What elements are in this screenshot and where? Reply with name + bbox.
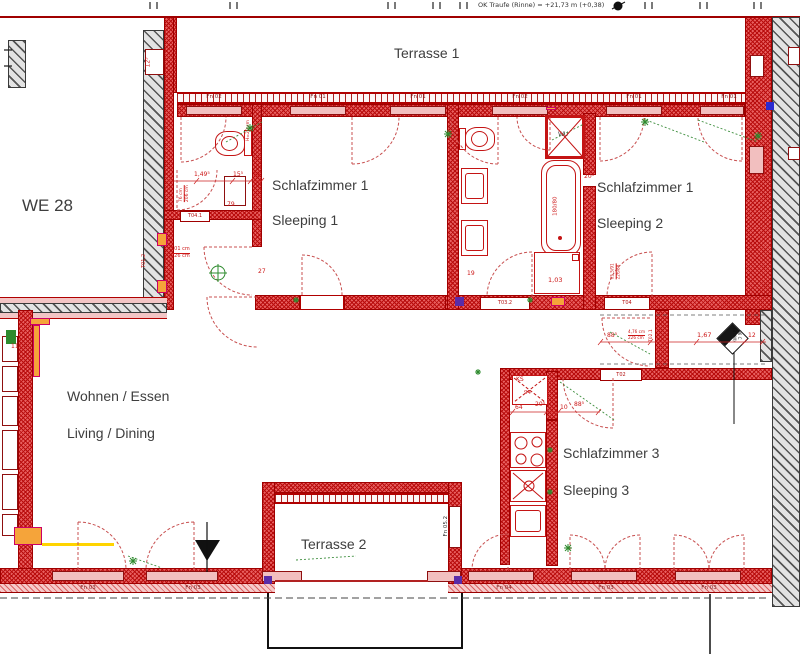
room-label-sleeping3-de: Schlafzimmer 3: [563, 445, 659, 461]
facade-box: [2, 430, 18, 470]
entry-badge-text: 06 C (BT/W): [731, 322, 741, 348]
window-label-side: Fn 05.2: [443, 516, 449, 537]
window-label: Fn 04: [488, 585, 520, 591]
dim-stack: 76 cm 206 cm: [179, 185, 190, 202]
wall-terrace2-top: [262, 482, 462, 493]
window-label: Fn 01: [302, 94, 334, 100]
door-tag-hall: T01.2: [142, 254, 148, 268]
window-sill: [427, 571, 461, 582]
dim: 10: [560, 405, 568, 412]
fridge-label: KS: [516, 377, 524, 384]
wall-terrace2-left: [262, 482, 275, 584]
dim: H=20 cm: [246, 120, 251, 141]
room-label-sleeping1-de: Schlafzimmer 1: [272, 177, 368, 193]
door-tag-wc: T04.1: [180, 211, 210, 222]
roof-note: OK Traufe (Rinne) = +21,73 m (+0,38): [478, 1, 604, 9]
wall-bath-right: [583, 186, 596, 310]
window-label: Fn 03: [590, 585, 622, 591]
room-label-sleeping1-en: Sleeping 1: [272, 212, 338, 228]
wall-mid: [255, 295, 300, 310]
facade-box: [2, 396, 18, 426]
orange-marker: [551, 297, 565, 306]
window-tag-box: [449, 506, 461, 548]
dim: 88⁵: [574, 402, 584, 409]
dim-stack: 65,5/91 226/88: [611, 263, 622, 279]
window-label: Fn 01: [713, 94, 745, 100]
wall-niche: [788, 147, 800, 160]
dim: 20⁵: [584, 174, 594, 181]
wall-bottom-left: [0, 568, 275, 584]
wall-left-inner: [164, 17, 174, 310]
room-label-terrasse2: Terrasse 2: [301, 536, 366, 552]
window-sill: [606, 106, 662, 115]
dim: 1,49⁵: [194, 172, 210, 179]
window-sill: [52, 571, 124, 581]
wall-kitchen-left: [500, 368, 510, 565]
dim: 15⁵: [233, 172, 243, 179]
window-sill: [390, 106, 446, 115]
facade-box: [2, 366, 18, 392]
wall-corridor-partition: [655, 310, 669, 368]
target-symbol: [209, 264, 227, 282]
dim: 79: [227, 202, 235, 209]
dim-wall-thickness: 12⁵: [146, 57, 153, 67]
unit-label: WE 28: [22, 196, 73, 216]
dim: 88⁵: [607, 333, 617, 340]
dim: 226 cm: [628, 335, 644, 340]
door-tag-corridor: T02: [600, 369, 642, 381]
floor-plan: OK Traufe (Rinne) = +21,73 m (+0,38) 12⁵…: [0, 0, 800, 654]
dim: 20⁵: [535, 402, 545, 409]
wall-mid: [344, 295, 457, 310]
window-sill: [468, 571, 534, 581]
bathtub-drain: [558, 236, 562, 240]
cabinet-size: 1,03: [548, 277, 562, 284]
terrace2-edge: [275, 580, 428, 582]
window-sill: [186, 106, 242, 115]
bathtub-size: 180/80: [553, 196, 559, 215]
terrace1-railing: [177, 92, 745, 104]
orange-marker: [33, 325, 40, 377]
window-label: Fn 02: [198, 94, 230, 100]
dishwasher-inner: [515, 510, 541, 532]
window-label: Fn 03: [693, 585, 725, 591]
door-opening: [300, 295, 344, 310]
dim: 19: [467, 271, 475, 278]
window-sill: [290, 106, 346, 115]
dim: 27: [258, 269, 266, 276]
terrace2-railing: [275, 493, 449, 504]
door-tag-bedroom2: T04: [604, 297, 650, 310]
wall-right-outer: [772, 17, 800, 607]
toilet-bowl: [221, 136, 238, 151]
dim-stack: 4,76 cm 226 cm: [628, 330, 645, 341]
room-label-living-de: Wohnen / Essen: [67, 388, 169, 404]
yellow-highlight: [42, 543, 114, 546]
dim: H=20 cm: [450, 264, 455, 285]
wall-wc-bottom: [164, 210, 262, 220]
dim: 226/88: [617, 263, 622, 279]
window-sill: [571, 571, 637, 581]
dim: 64: [515, 405, 523, 412]
window-sill: [675, 571, 741, 581]
orange-marker: [546, 107, 556, 110]
toilet-bowl: [471, 131, 488, 147]
room-label-sleeping2-de: Schlafzimmer 1: [597, 179, 693, 195]
dim-stack: 101 cm 226 cm: [171, 247, 190, 260]
window-label: Fn 03: [72, 585, 104, 591]
dim: 11⁸: [11, 344, 21, 351]
green-marker: [6, 330, 16, 344]
washbasin-bowl: [465, 173, 484, 199]
dim: 15: [253, 172, 261, 179]
kitchen-sink: [510, 470, 546, 502]
window-label: Fn 03: [177, 585, 209, 591]
door-tag-bath: T03.2: [480, 297, 530, 310]
wall-corridor-gray: [760, 310, 772, 362]
dim: 1,67: [697, 332, 711, 339]
orange-highlight: [14, 527, 42, 545]
cabinet-corner: [572, 254, 579, 261]
wall-niche: [749, 146, 764, 174]
door-tag-partition: T02.1: [649, 329, 654, 342]
window-sill: [700, 106, 744, 115]
dim: 206 cm: [185, 185, 190, 202]
stove: [510, 432, 546, 468]
north-mark-icon: [612, 2, 625, 11]
window-sill: [146, 571, 218, 581]
wall-niche: [788, 47, 800, 65]
door-frame-marker: [157, 233, 167, 246]
orange-marker: [30, 318, 50, 325]
roof-line: [0, 16, 800, 18]
entry-badge-line2: (BT/W): [731, 322, 736, 348]
dim-94: 94: [524, 390, 531, 396]
wall-kitchen-mid-lower: [546, 420, 558, 566]
dim: 12: [748, 333, 756, 340]
room-label-terrasse1: Terrasse 1: [394, 45, 459, 61]
washbasin-bowl: [465, 225, 484, 251]
top-tick-marks: [4, 2, 761, 66]
room-label-sleeping3-en: Sleeping 3: [563, 482, 629, 498]
window-label: Fn 01: [618, 94, 650, 100]
room-label-sleeping2-en: Sleeping 2: [597, 215, 663, 231]
wall-bottom-sill-hatch: [0, 584, 275, 593]
window-sill: [492, 106, 548, 115]
room-label-living-en: Living / Dining: [67, 425, 155, 441]
wall-niche: [750, 55, 764, 77]
window-label: Fn 01: [402, 94, 434, 100]
facade-box: [2, 474, 18, 510]
door-frame-marker: [157, 280, 167, 293]
window-label: Fn 02: [504, 94, 536, 100]
shower-label: WU: [558, 132, 568, 139]
wall-fragment-top-left: [8, 40, 26, 88]
dim: 226 cm: [171, 253, 190, 259]
